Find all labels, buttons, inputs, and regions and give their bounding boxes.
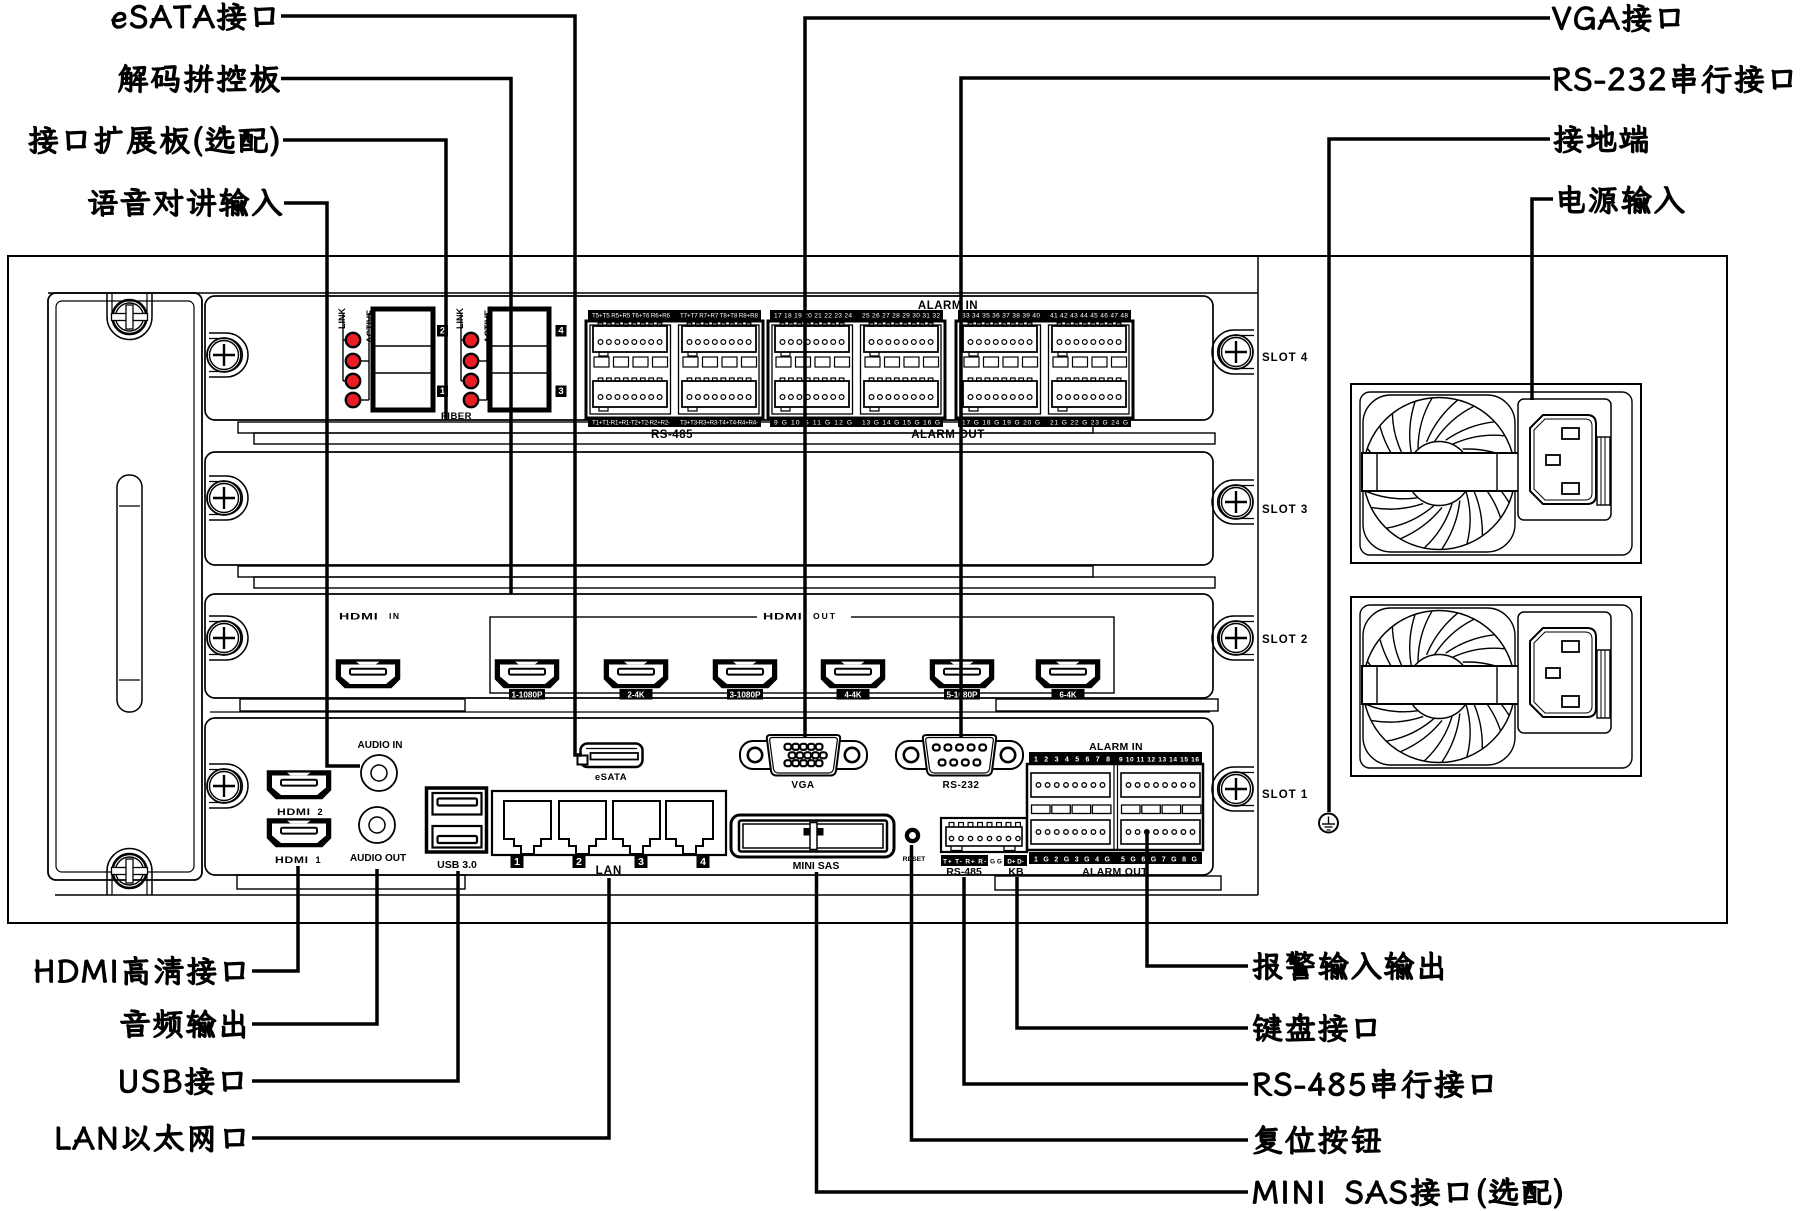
svg-text:T+ T- R+ R-: T+ T- R+ R- (943, 859, 986, 866)
svg-text:HDMI: HDMI (763, 611, 802, 622)
svg-text:17 18 19 20 21 22 23 24: 17 18 19 20 21 22 23 24 (774, 313, 852, 320)
svg-text:13 G 14 G 15 G 16 G: 13 G 14 G 15 G 16 G (862, 420, 940, 427)
svg-text:2: 2 (576, 856, 582, 868)
svg-text:3: 3 (558, 386, 563, 397)
svg-text:ALARM OUT: ALARM OUT (1082, 866, 1148, 878)
svg-text:SLOT 3: SLOT 3 (1262, 504, 1308, 516)
svg-text:AUDIO IN: AUDIO IN (358, 740, 403, 751)
svg-text:3-1080P: 3-1080P (730, 691, 761, 700)
svg-text:4: 4 (558, 326, 564, 337)
svg-text:4-4K: 4-4K (845, 691, 862, 700)
svg-text:21 G 22 G 23 G 24 G: 21 G 22 G 23 G 24 G (1050, 420, 1128, 427)
svg-text:SLOT 4: SLOT 4 (1262, 352, 1308, 364)
svg-text:RESET: RESET (903, 856, 927, 863)
svg-text:eSATA: eSATA (595, 772, 627, 783)
svg-text:LINK: LINK (337, 308, 347, 329)
svg-text:4: 4 (700, 856, 706, 868)
svg-text:KB: KB (1008, 866, 1024, 878)
svg-text:VGA: VGA (791, 780, 814, 791)
svg-text:1: 1 (315, 855, 321, 866)
svg-text:ALARM IN: ALARM IN (1089, 741, 1143, 753)
svg-text:HDMI: HDMI (339, 611, 378, 622)
svg-text:SLOT 2: SLOT 2 (1262, 634, 1308, 646)
svg-text:LINK: LINK (455, 308, 465, 329)
svg-text:USB 3.0: USB 3.0 (437, 859, 477, 871)
svg-text:LAN: LAN (596, 865, 623, 877)
svg-text:41 42 43 44 45 46 47 48: 41 42 43 44 45 46 47 48 (1050, 313, 1128, 320)
svg-text:RS-485: RS-485 (946, 866, 982, 878)
svg-text:6-4K: 6-4K (1060, 691, 1077, 700)
svg-text:SLOT 1: SLOT 1 (1262, 789, 1308, 801)
svg-text:9 G 10 G 11 G 12 G: 9 G 10 G 11 G 12 G (774, 420, 852, 427)
svg-text:HDMI: HDMI (275, 855, 309, 865)
svg-text:33 34 35 36 37 38 39 40: 33 34 35 36 37 38 39 40 (962, 313, 1040, 320)
svg-text:1 2 3 4 5 6 7 8: 1 2 3 4 5 6 7 8 (1034, 757, 1110, 764)
svg-text:2: 2 (317, 807, 322, 818)
svg-text:RS-485: RS-485 (651, 429, 693, 441)
svg-text:2-4K: 2-4K (628, 691, 645, 700)
svg-text:G G: G G (990, 859, 1002, 866)
svg-text:17 G 18 G 19 G 20 G: 17 G 18 G 19 G 20 G (962, 420, 1040, 427)
svg-text:25 26 27 28 29 30 31 32: 25 26 27 28 29 30 31 32 (862, 313, 940, 320)
svg-text:D+ D-: D+ D- (1007, 859, 1023, 866)
svg-text:HDMI: HDMI (277, 807, 311, 817)
svg-text:RS-232: RS-232 (943, 780, 980, 791)
svg-text:IN: IN (389, 611, 401, 621)
svg-text:1: 1 (514, 856, 520, 868)
svg-text:MINI SAS: MINI SAS (793, 860, 840, 872)
svg-text:T5+T5 R5+R5 T6+T6 R6+R6: T5+T5 R5+R5 T6+T6 R6+R6 (592, 313, 671, 320)
svg-text:T1+T1-R1+R1-T2+T2-R2+R2-: T1+T1-R1+R1-T2+T2-R2+R2- (592, 420, 670, 427)
svg-text:ALARM OUT: ALARM OUT (911, 429, 985, 441)
svg-text:3: 3 (638, 856, 644, 868)
svg-text:1-1080P: 1-1080P (512, 691, 543, 700)
svg-text:T3+T3-R3+R3-T4+T4-R4+R4-: T3+T3-R3+R3-T4+T4-R4+R4- (680, 420, 758, 427)
svg-text:AUDIO OUT: AUDIO OUT (350, 853, 406, 864)
svg-text:OUT: OUT (813, 611, 837, 621)
svg-text:T7+T7 R7+R7 T8+T8 R8+R8: T7+T7 R7+R7 T8+T8 R8+R8 (680, 313, 759, 320)
svg-text:9 10 11 12 13 14 15 16: 9 10 11 12 13 14 15 16 (1119, 757, 1199, 764)
svg-text:ALARM IN: ALARM IN (918, 300, 978, 312)
